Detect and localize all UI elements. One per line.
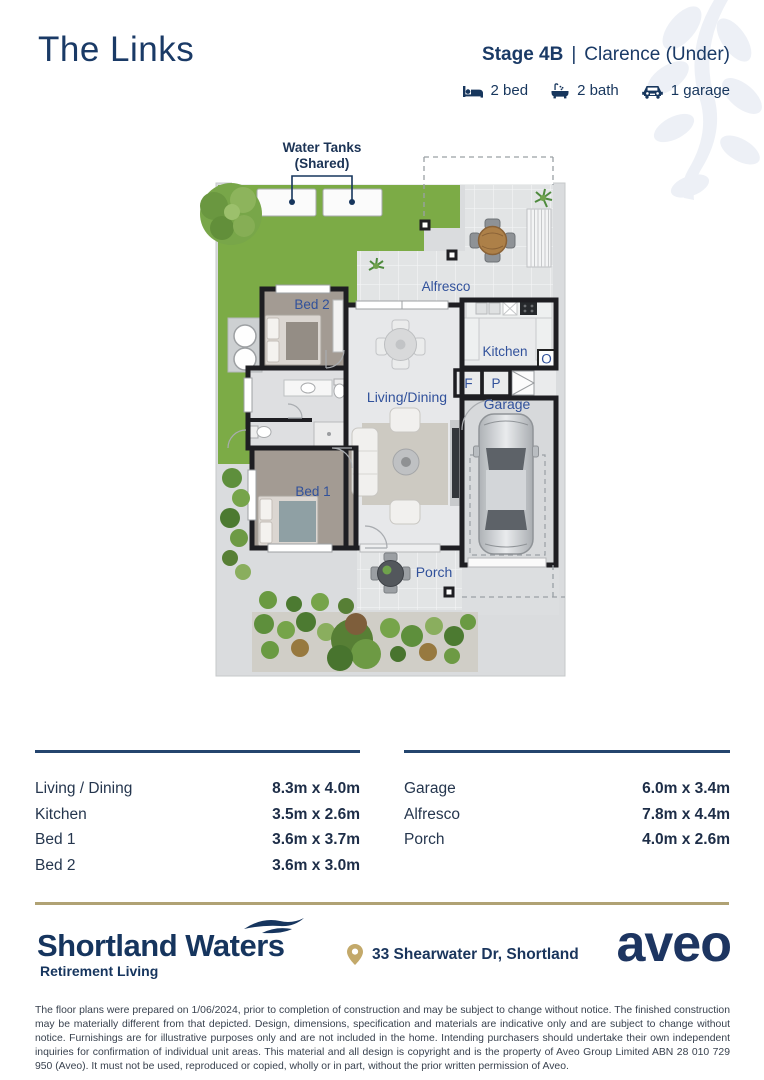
label-alfresco: Alfresco — [422, 279, 471, 294]
room-size: 3.6m x 3.0m — [272, 857, 360, 875]
variant-label: Clarence (Under) — [584, 44, 730, 65]
label-bed2: Bed 2 — [294, 297, 329, 312]
community-tagline: Retirement Living — [40, 963, 158, 979]
label-water-tanks-1: Water Tanks — [283, 140, 362, 155]
label-fridge: F — [464, 376, 472, 391]
car — [470, 414, 545, 555]
dimensions-right-column: Garage 6.0m x 3.4m Alfresco 7.8m x 4.4m … — [404, 750, 730, 853]
dimension-row-bed2: Bed 2 3.6m x 3.0m — [35, 853, 360, 879]
disclaimer-text: The floor plans were prepared on 1/06/20… — [35, 1004, 730, 1074]
feature-summary: 2 bed 2 bath 1 garage — [462, 82, 730, 99]
aveo-logo: aveo — [616, 918, 731, 970]
bird-swoosh-icon — [240, 913, 310, 937]
stage-line: Stage 4B|Clarence (Under) — [462, 44, 730, 66]
room-size: 4.0m x 2.6m — [642, 831, 730, 849]
tree — [200, 183, 262, 245]
floor-plan: Water Tanks (Shared) Alfresco Bed 2 Kitc… — [0, 130, 764, 692]
room-name: Bed 2 — [35, 857, 76, 875]
room-name: Bed 1 — [35, 831, 76, 849]
rule-right — [404, 750, 730, 753]
rule-left — [35, 750, 360, 753]
page-title: The Links — [38, 30, 194, 70]
stage-label: Stage 4B — [482, 44, 563, 65]
louvre-screen — [527, 209, 551, 267]
label-bed1: Bed 1 — [295, 484, 330, 499]
address-block: 33 Shearwater Dr, Shortland — [347, 944, 579, 965]
header-right: Stage 4B|Clarence (Under) 2 bed 2 bath — [462, 44, 730, 99]
garage-icon — [641, 83, 664, 99]
driveway — [462, 567, 559, 615]
room-size: 8.3m x 4.0m — [272, 780, 360, 798]
label-living-dining: Living/Dining — [367, 389, 447, 405]
room-name: Porch — [404, 831, 445, 849]
dimensions-left-column: Living / Dining 8.3m x 4.0m Kitchen 3.5m… — [35, 750, 360, 879]
bed1-furniture — [258, 496, 318, 546]
room-size: 3.6m x 3.7m — [272, 831, 360, 849]
dimension-row-bed1: Bed 1 3.6m x 3.7m — [35, 828, 360, 854]
feature-bed-label: 2 bed — [491, 82, 529, 99]
floor-plan-page: { "header": { "title": "The Links", "sta… — [0, 0, 764, 1080]
label-porch: Porch — [416, 564, 453, 580]
location-pin-icon — [347, 944, 363, 965]
room-size: 7.8m x 4.4m — [642, 806, 730, 824]
label-garage: Garage — [484, 396, 531, 412]
dimension-row-kitchen: Kitchen 3.5m x 2.6m — [35, 802, 360, 828]
feature-bed: 2 bed — [462, 82, 529, 99]
stage-divider: | — [571, 44, 576, 65]
label-oven: O — [541, 352, 552, 367]
room-name: Garage — [404, 780, 456, 798]
dimension-row-porch: Porch 4.0m x 2.6m — [404, 828, 730, 854]
address-text: 33 Shearwater Dr, Shortland — [372, 946, 579, 964]
dimension-row-living: Living / Dining 8.3m x 4.0m — [35, 777, 360, 803]
feature-garage: 1 garage — [641, 82, 730, 99]
room-size: 3.5m x 2.6m — [272, 806, 360, 824]
room-name: Living / Dining — [35, 780, 132, 798]
feature-bath-label: 2 bath — [577, 82, 619, 99]
dimension-row-garage: Garage 6.0m x 3.4m — [404, 777, 730, 803]
footer-divider — [35, 902, 729, 905]
label-water-tanks-2: (Shared) — [295, 156, 350, 171]
room-name: Alfresco — [404, 806, 460, 824]
room-size: 6.0m x 3.4m — [642, 780, 730, 798]
garden-bed-bottom — [252, 612, 478, 672]
label-pantry: P — [491, 376, 500, 391]
dimension-row-alfresco: Alfresco 7.8m x 4.4m — [404, 802, 730, 828]
feature-bath: 2 bath — [550, 82, 619, 99]
label-kitchen: Kitchen — [482, 344, 527, 359]
bed-icon — [462, 83, 484, 99]
room-name: Kitchen — [35, 806, 87, 824]
feature-garage-label: 1 garage — [671, 82, 730, 99]
bath-icon — [550, 82, 570, 99]
